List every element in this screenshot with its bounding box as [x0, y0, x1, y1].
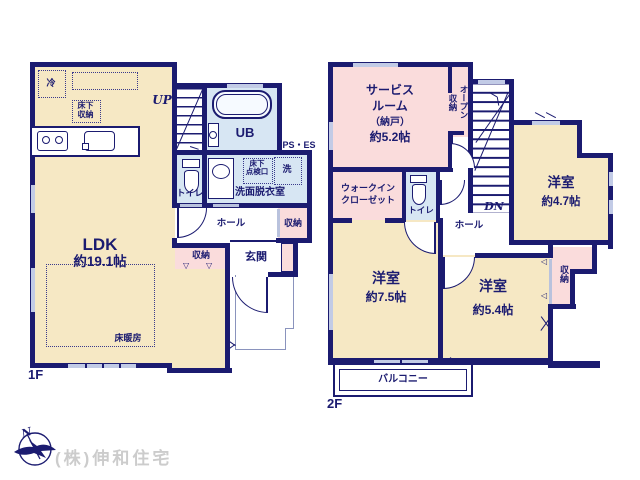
window	[31, 268, 35, 312]
wall-segment	[570, 272, 575, 306]
open-storage-label: オープン収納	[447, 82, 469, 122]
room-label-ub: UB	[227, 126, 263, 141]
washroom-basin	[212, 164, 230, 179]
entrance-step-line	[230, 240, 293, 242]
room-label-54: 洋室	[467, 279, 519, 295]
room-size-75: 約7.5帖	[355, 291, 417, 304]
underfloor-line2: 収納	[78, 110, 94, 119]
sliding-door	[213, 204, 239, 207]
compass: N	[10, 423, 60, 473]
window-shutter-tick	[535, 112, 545, 118]
room-label-toilet2: トイレ	[406, 206, 436, 216]
service-size: 約5.2帖	[340, 131, 440, 144]
door-arc-ldk-hall	[177, 208, 207, 238]
wall-segment	[30, 62, 177, 67]
dotted-space	[72, 72, 138, 90]
bath-vanity-basin	[209, 131, 217, 139]
room-label-wic: ウォークイン クローゼット	[336, 183, 400, 205]
underfloor-storage-label: 床下 収納	[72, 102, 99, 120]
wall-segment	[548, 304, 553, 363]
wall-segment	[225, 243, 230, 373]
floor-plan: ▽ ▽ LDK 約19.1帖 床暖房 冷 床下 収納 UP UB PS・ES ト…	[0, 0, 640, 480]
toilet-tank	[410, 175, 427, 183]
wic-line1: ウォークイン	[336, 183, 400, 193]
room-label-47: 洋室	[535, 175, 587, 190]
sliding-door	[180, 204, 202, 207]
closet-hall-label: 収納	[279, 218, 307, 228]
wall-segment	[172, 243, 230, 248]
porch-line	[285, 328, 286, 350]
wall-segment	[307, 150, 312, 243]
wall-segment	[202, 88, 207, 150]
service-line1: サービス	[340, 84, 440, 97]
closet-door-mark: ◁	[541, 258, 547, 266]
closet-door	[549, 259, 552, 304]
window	[329, 122, 333, 150]
window	[609, 172, 613, 186]
window	[31, 185, 35, 213]
wall-segment	[438, 222, 443, 358]
window-mullion	[85, 363, 87, 368]
inspection-hatch-label: 床下 点検口	[243, 160, 271, 177]
stairs-up-label: UP	[151, 94, 173, 107]
fridge-label: 冷	[38, 78, 64, 88]
wall-segment	[207, 150, 282, 155]
bathtub-inner	[216, 94, 268, 115]
room-size-ldk: 約19.1帖	[55, 254, 145, 269]
wall-segment	[328, 167, 453, 172]
toilet-bowl	[412, 184, 426, 205]
door-arc-toilet2	[440, 180, 465, 205]
wall-segment	[548, 361, 600, 368]
wall-segment	[30, 62, 35, 368]
window	[353, 63, 398, 67]
toilet-tank	[182, 159, 200, 168]
balcony-label: バルコニー	[373, 374, 433, 385]
room-label-hall1: ホール	[212, 219, 250, 230]
underfloor-line1: 床下	[78, 101, 94, 110]
room-size-54: 約5.4帖	[462, 304, 524, 317]
watermark: (株)伸和住宅	[55, 444, 172, 469]
sink-tap	[82, 143, 89, 150]
floor1-label: 1F	[28, 368, 54, 383]
room-label-toilet1: トイレ	[175, 188, 205, 198]
window	[532, 121, 560, 125]
wall-segment	[509, 240, 613, 245]
door-arc-entrance	[232, 277, 268, 313]
hatch-line2: 点検口	[246, 167, 269, 176]
wall-segment	[328, 218, 352, 223]
window	[609, 200, 613, 214]
room-label-ldk: LDK	[60, 235, 140, 254]
window	[227, 84, 263, 88]
porch-line	[293, 275, 294, 329]
window	[329, 274, 333, 330]
shaft-label: PS・ES	[282, 140, 316, 150]
service-line3: （納戸）	[340, 117, 440, 128]
stairs-dn-label: DN	[481, 201, 507, 213]
wall-segment	[167, 368, 232, 373]
window-mullion	[119, 363, 121, 368]
room-label-entrance: 玄関	[237, 251, 275, 263]
closet-door-mark: ▽	[206, 262, 212, 270]
room-ldk-fill2	[172, 268, 228, 368]
closet-door-mark: ▽	[183, 262, 189, 270]
washer-label: 洗	[274, 164, 300, 174]
porch-line	[235, 349, 286, 350]
window-mullion	[102, 363, 104, 368]
room-label-hall2: ホール	[448, 221, 490, 232]
closet-2f-label: 収納	[557, 258, 569, 290]
room-label-75: 洋室	[360, 271, 412, 287]
wall-segment	[509, 79, 514, 245]
room-label-washroom: 洗面脱衣室	[222, 187, 298, 198]
window	[478, 80, 505, 84]
window-shutter-tick	[546, 112, 556, 118]
closet-ldk-label: 収納	[186, 250, 216, 260]
closet-door-mark: ◁	[541, 292, 547, 300]
wall-segment	[268, 272, 298, 277]
floor2-label: 2F	[327, 397, 355, 412]
stove-burner	[42, 136, 50, 144]
floor-heating-label: 床暖房	[104, 333, 152, 343]
stove-burner	[55, 136, 63, 144]
service-line2: ルーム	[340, 100, 440, 113]
room-label-service: サービス ルーム （納戸） 約5.2帖	[340, 84, 440, 145]
wic-line2: クローゼット	[336, 195, 400, 205]
room-size-47: 約4.7帖	[531, 196, 591, 209]
